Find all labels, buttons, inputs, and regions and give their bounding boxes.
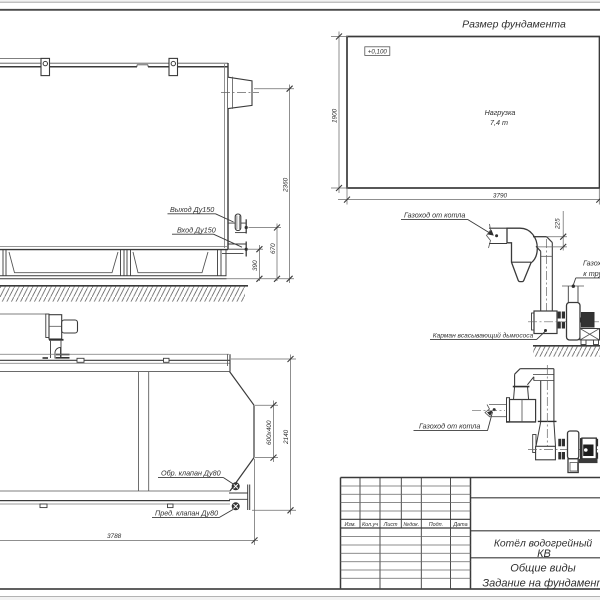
svg-text:390: 390 [252,260,259,271]
svg-text:Кол.уч: Кол.уч [362,522,378,528]
svg-text:Вход Ду150: Вход Ду150 [177,226,216,235]
svg-text:Выход Ду150: Выход Ду150 [170,205,214,214]
svg-text:Размер фундамента: Размер фундамента [462,19,566,31]
svg-text:Нагрузка: Нагрузка [485,108,516,117]
svg-text:Лист: Лист [383,522,398,528]
svg-text:Газоход от котла: Газоход от котла [404,211,465,220]
svg-text:3788: 3788 [107,533,122,540]
svg-text:Газоход от котла: Газоход от котла [419,422,480,431]
svg-text:1900: 1900 [332,108,339,123]
svg-text:Изм.: Изм. [344,522,356,528]
svg-text:Газоход: Газоход [583,259,600,268]
svg-text:КВ: КВ [537,548,551,560]
svg-text:к трубе: к трубе [583,269,600,278]
svg-text:+0,100: +0,100 [368,48,388,55]
svg-text:7,4 т: 7,4 т [490,118,508,127]
svg-text:225: 225 [555,218,562,230]
svg-text:Подп.: Подп. [429,522,443,528]
svg-text:Обр. клапан Ду80: Обр. клапан Ду80 [161,469,221,478]
svg-text:670: 670 [270,243,277,254]
svg-text:2140: 2140 [283,429,290,445]
svg-text:Пред. клапан Ду80: Пред. клапан Ду80 [155,509,218,518]
svg-text:Задание на фундамент: Задание на фундамент [482,578,600,590]
svg-text:3790: 3790 [493,193,508,200]
svg-text:№док.: №док. [403,522,419,528]
svg-text:Дата: Дата [452,522,467,528]
svg-text:Карман всасывающий дымососа: Карман всасывающий дымососа [433,332,534,340]
svg-text:600х400: 600х400 [266,420,273,445]
svg-text:2360: 2360 [282,177,289,193]
svg-text:Общие виды: Общие виды [510,563,575,575]
